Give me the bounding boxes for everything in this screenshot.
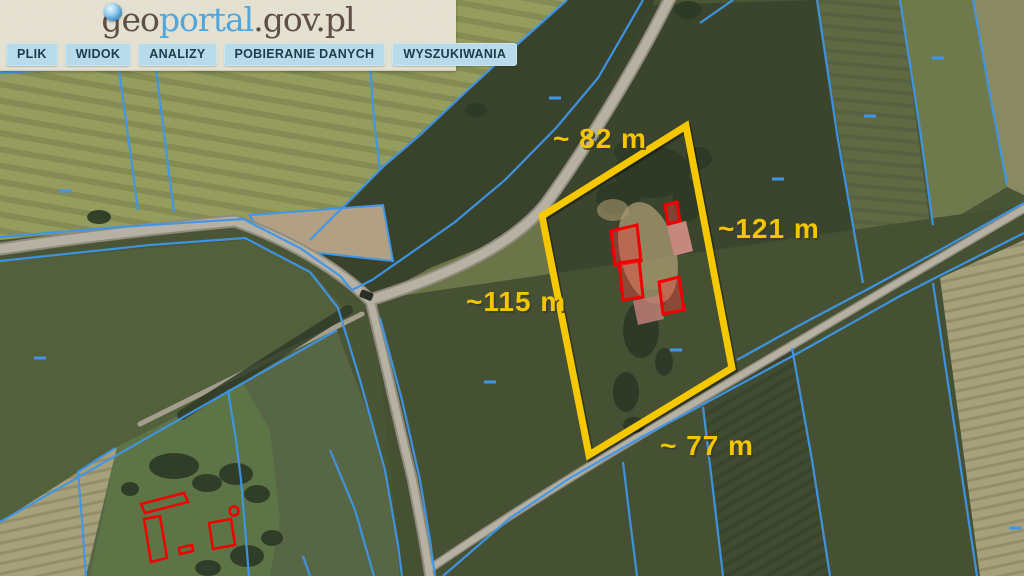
main-menu: PLIK WIDOK ANALIZY POBIERANIE DANYCH WYS… xyxy=(6,43,517,66)
menu-item-widok[interactable]: WIDOK xyxy=(65,43,132,66)
logo-text-govpl: .gov.pl xyxy=(253,0,354,39)
logo-text-portal: portal xyxy=(159,0,253,39)
measurement-label-left: ~115 m xyxy=(466,286,566,317)
menu-item-pobieranie-danych[interactable]: POBIERANIE DANYCH xyxy=(224,43,386,66)
building-outline xyxy=(665,202,680,224)
geoportal-map-viewer: ~ 82 m ~ 82 m ~121 m ~121 m ~115 m ~115 … xyxy=(0,0,1024,576)
measurement-label-top: ~ 82 m xyxy=(553,123,647,154)
menu-item-wyszukiwania[interactable]: WYSZUKIWANIA xyxy=(392,43,517,66)
geoportal-logo: geoportal.gov.pl xyxy=(0,1,456,39)
map-canvas[interactable]: ~ 82 m ~ 82 m ~121 m ~121 m ~115 m ~115 … xyxy=(0,0,1024,576)
header-bar: geoportal.gov.pl PLIK WIDOK ANALIZY POBI… xyxy=(0,0,456,71)
measurement-label-right: ~121 m xyxy=(718,213,820,244)
menu-item-plik[interactable]: PLIK xyxy=(6,43,58,66)
globe-sphere-icon xyxy=(104,3,122,21)
building-outline xyxy=(619,260,643,300)
measurement-label-bottom: ~ 77 m xyxy=(660,430,754,461)
menu-item-analizy[interactable]: ANALIZY xyxy=(138,43,216,66)
building-outline xyxy=(659,277,684,314)
